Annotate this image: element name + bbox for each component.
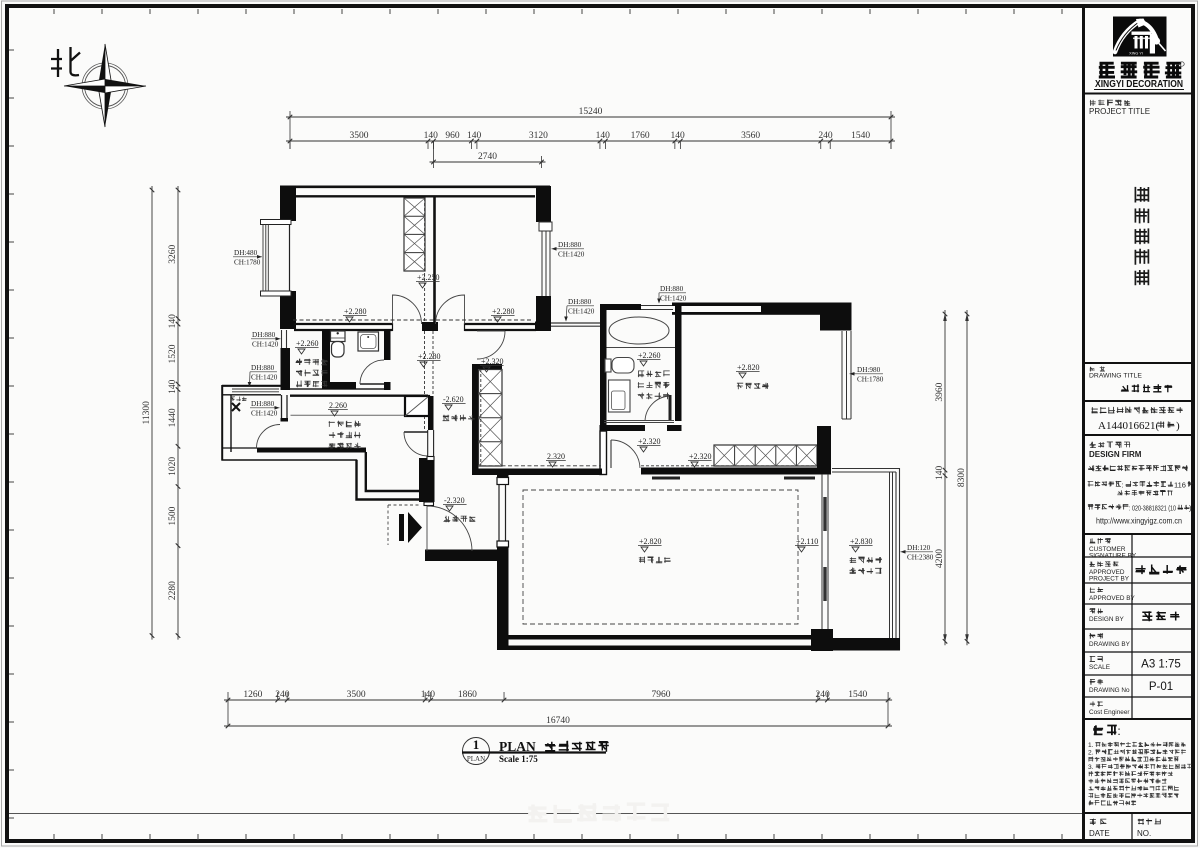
svg-text:SIGNATURE BY: SIGNATURE BY (1089, 553, 1137, 560)
svg-text:1020: 1020 (168, 457, 178, 476)
svg-text:1.: 1. (1088, 742, 1094, 749)
svg-text:DRAWING BY: DRAWING BY (1089, 641, 1131, 648)
svg-text:140: 140 (168, 379, 178, 394)
svg-text:2280: 2280 (168, 581, 178, 600)
svg-text:140: 140 (168, 314, 178, 329)
svg-text::: : (1122, 483, 1124, 490)
svg-text:1540: 1540 (848, 690, 867, 700)
svg-text:DESIGN BY: DESIGN BY (1089, 616, 1125, 623)
svg-text:DH:880: DH:880 (251, 364, 275, 372)
svg-text:+2.260: +2.260 (638, 351, 661, 360)
svg-text:CH:1780: CH:1780 (857, 376, 884, 384)
svg-text:XINGYI DECORATION: XINGYI DECORATION (1095, 78, 1183, 90)
svg-text:+2.820: +2.820 (639, 537, 662, 546)
svg-text:PROJECT TITLE: PROJECT TITLE (1089, 107, 1150, 116)
svg-text:-2.620: -2.620 (443, 395, 464, 404)
svg-text:3560: 3560 (741, 131, 760, 141)
svg-text:140: 140 (424, 131, 439, 141)
svg-text:CH:1420: CH:1420 (660, 295, 687, 303)
svg-text:APPROVED BY: APPROVED BY (1089, 595, 1136, 602)
svg-text:DH:120: DH:120 (907, 544, 931, 552)
svg-text:DH:880: DH:880 (568, 298, 592, 306)
svg-text:960: 960 (445, 131, 460, 141)
svg-text:CH:1420: CH:1420 (251, 374, 278, 382)
svg-text:2.260: 2.260 (329, 401, 347, 410)
svg-text:116: 116 (1174, 481, 1186, 490)
svg-text:240: 240 (818, 131, 833, 141)
svg-text:11300: 11300 (142, 401, 152, 425)
svg-text:+2.820: +2.820 (737, 363, 760, 372)
svg-text:http://www.xingyigz.com.cn: http://www.xingyigz.com.cn (1096, 517, 1182, 526)
svg-text:+2.260: +2.260 (296, 339, 319, 348)
svg-text:+2.320: +2.320 (638, 437, 661, 446)
svg-text:140: 140 (467, 131, 482, 141)
svg-text:CH:1780: CH:1780 (234, 259, 261, 267)
svg-text:PLAN: PLAN (499, 739, 536, 754)
svg-text:-2.320: -2.320 (444, 496, 465, 505)
svg-text:DH:880: DH:880 (251, 400, 275, 408)
svg-text:DRAWING No: DRAWING No (1089, 687, 1130, 694)
svg-text:DRAWING TITLE: DRAWING TITLE (1089, 373, 1142, 380)
svg-text:3120: 3120 (529, 131, 548, 141)
svg-text:CH:2380: CH:2380 (907, 554, 934, 562)
svg-text:1760: 1760 (631, 131, 650, 141)
svg-text:DATE: DATE (1089, 829, 1110, 838)
svg-text:CH:1420: CH:1420 (251, 410, 278, 418)
svg-text:1440: 1440 (168, 408, 178, 427)
svg-text:Cost Engineer: Cost Engineer (1089, 709, 1130, 716)
svg-text:PLAN: PLAN (467, 755, 485, 763)
svg-text:A144016621(: A144016621( (1098, 420, 1159, 432)
svg-text:3960: 3960 (935, 382, 945, 401)
svg-text:1860: 1860 (458, 690, 477, 700)
svg-text:1540: 1540 (851, 131, 870, 141)
svg-text:XING YI: XING YI (1129, 52, 1143, 56)
svg-text:+2.320: +2.320 (481, 357, 504, 366)
svg-text:P-01: P-01 (1149, 681, 1173, 693)
svg-text:DESIGN FIRM: DESIGN FIRM (1089, 450, 1142, 459)
svg-text:16740: 16740 (546, 716, 570, 726)
svg-text:): ) (1176, 420, 1180, 432)
svg-text:DH:880: DH:880 (558, 241, 582, 249)
svg-text:+2.280: +2.280 (344, 307, 367, 316)
svg-text:+2.110: +2.110 (796, 537, 818, 546)
svg-text:2740: 2740 (478, 152, 497, 162)
svg-text:140: 140 (670, 131, 685, 141)
svg-text:1260: 1260 (243, 690, 262, 700)
svg-text:2.: 2. (1088, 749, 1094, 756)
svg-text:1500: 1500 (168, 506, 178, 525)
svg-text:PROJECT BY: PROJECT BY (1089, 576, 1130, 583)
svg-text:DH:980: DH:980 (857, 366, 881, 374)
svg-text:2.320: 2.320 (547, 452, 565, 461)
svg-text:8300: 8300 (957, 468, 967, 487)
svg-text:SCALE: SCALE (1089, 664, 1110, 671)
svg-text:CH:1420: CH:1420 (558, 251, 585, 259)
svg-text:DH:480: DH:480 (234, 249, 258, 257)
svg-text:3.: 3. (1088, 764, 1094, 771)
svg-text:Scale 1:75: Scale 1:75 (499, 754, 538, 764)
svg-text:CH:1420: CH:1420 (568, 308, 595, 316)
svg-text:140: 140 (935, 466, 945, 481)
svg-text:1520: 1520 (168, 344, 178, 363)
svg-text:15240: 15240 (579, 107, 603, 117)
svg-text:CH:1420: CH:1420 (252, 341, 279, 349)
svg-text:+2.280: +2.280 (418, 352, 441, 361)
svg-text:7960: 7960 (651, 690, 670, 700)
svg-text:140: 140 (596, 131, 611, 141)
svg-text:1: 1 (473, 737, 480, 752)
svg-text:NO.: NO. (1137, 829, 1151, 838)
svg-text:DH:880: DH:880 (660, 285, 684, 293)
svg-text:+2.250: +2.250 (417, 273, 440, 282)
svg-text::: : (1117, 724, 1120, 738)
svg-text:A3 1:75: A3 1:75 (1141, 659, 1181, 671)
svg-text:3500: 3500 (350, 131, 369, 141)
svg-text:4200: 4200 (935, 549, 945, 568)
svg-text:DH:880: DH:880 (252, 331, 276, 339)
svg-text:140: 140 (421, 690, 436, 700)
svg-text:+2.320: +2.320 (689, 452, 712, 461)
svg-text:+2.280: +2.280 (492, 307, 515, 316)
svg-text:+2.830: +2.830 (850, 537, 873, 546)
svg-text:: 020-38818321 (10: : 020-38818321 (10 (1129, 504, 1176, 513)
svg-text:3260: 3260 (168, 245, 178, 264)
svg-text:3500: 3500 (347, 690, 366, 700)
